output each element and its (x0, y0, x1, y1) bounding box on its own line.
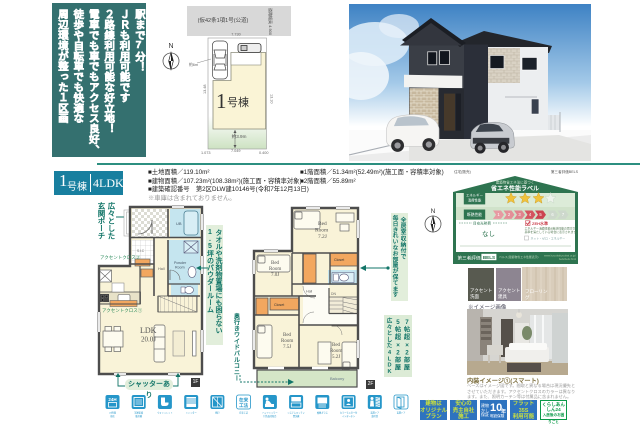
svg-text:N: N (168, 43, 173, 50)
svg-text:5.2J: 5.2J (332, 355, 340, 360)
svg-text:超: 超 (394, 333, 402, 341)
svg-text:N: N (431, 208, 436, 215)
svg-text:L: L (388, 356, 392, 362)
svg-text:基準を満たしている場合に表示されます。: 基準を満たしている場合に表示されます。 (525, 229, 580, 234)
svg-text:建築物省エネ法に基づく: 建築物省エネ法に基づく (496, 180, 535, 185)
svg-text:全: 全 (400, 216, 407, 224)
svg-text:す: す (393, 291, 399, 299)
svg-text:7.730: 7.730 (231, 33, 241, 37)
svg-text:き: き (393, 226, 399, 234)
svg-text:玄関ドア: 玄関ドア (370, 411, 380, 415)
svg-text:暖房機: 暖房機 (135, 414, 142, 418)
svg-text:第三者評価: 第三者評価 (458, 255, 481, 262)
svg-text:々: 々 (387, 324, 393, 331)
svg-text:ま: ま (393, 285, 399, 293)
svg-text:Room: Room (269, 267, 281, 272)
svg-text:Bed: Bed (332, 343, 341, 348)
svg-text:LDK: LDK (140, 326, 157, 335)
svg-text:帖: 帖 (395, 326, 402, 334)
svg-text:納: 納 (401, 240, 407, 248)
svg-text:Room: Room (315, 228, 329, 234)
svg-text:×: × (405, 342, 409, 349)
svg-text:浴室乾燥: 浴室乾燥 (134, 411, 144, 415)
svg-text:7.2J: 7.2J (318, 234, 327, 240)
svg-text:1: 1 (216, 89, 227, 113)
svg-text:断熱性能: 断熱性能 (467, 212, 482, 217)
svg-text:20.0J: 20.0J (141, 336, 156, 344)
svg-text:収: 収 (401, 234, 407, 242)
svg-text:K: K (387, 369, 391, 375)
svg-text:帖: 帖 (404, 326, 411, 334)
svg-text:0.400: 0.400 (259, 151, 269, 155)
svg-text:約6m: 約6m (189, 62, 198, 67)
svg-text:D: D (387, 363, 391, 369)
svg-text:目安光熱費: 目安光熱費 (473, 221, 491, 226)
svg-text:Hall: Hall (158, 267, 165, 271)
svg-text:保: 保 (392, 273, 399, 281)
svg-text:第三者評価BELS: 第三者評価BELS (551, 169, 579, 174)
svg-text:×: × (396, 342, 400, 349)
svg-text:室: 室 (401, 228, 407, 236)
svg-text:れ: れ (393, 232, 399, 240)
svg-text:UB: UB (176, 221, 182, 226)
svg-text:付洗面化粧台: 付洗面化粧台 (263, 414, 277, 418)
svg-text:Bed: Bed (271, 261, 280, 266)
svg-text:付: 付 (401, 247, 407, 255)
svg-text:複層ガラス: 複層ガラス (317, 411, 328, 415)
svg-text:玄関ドア: 玄関ドア (397, 411, 407, 415)
svg-text:居: 居 (401, 222, 407, 230)
svg-text:約3.9m: 約3.9m (232, 133, 247, 140)
svg-text:ハンドシャワー: ハンドシャワー (262, 411, 277, 415)
svg-text:BELS: BELS (483, 255, 495, 260)
svg-text:7.5J: 7.5J (283, 345, 291, 350)
svg-text:カラーモニター付: カラーモニター付 (340, 411, 358, 415)
svg-text:Room: Room (175, 266, 185, 270)
svg-text:アクセントクロス②: アクセントクロス② (100, 254, 141, 261)
svg-text:Closet: Closet (334, 258, 344, 262)
svg-text:24時間: 24時間 (109, 411, 116, 415)
svg-text:消費性能: 消費性能 (468, 198, 482, 203)
svg-text:フローリン: フローリン (525, 289, 548, 294)
svg-text:Balcony: Balcony (330, 376, 344, 381)
svg-text:bels/bels.html: bels/bels.html (559, 257, 576, 261)
svg-text:鎌付錠: 鎌付錠 (372, 414, 379, 418)
svg-text:部: 部 (393, 255, 399, 263)
svg-text:24H: 24H (108, 397, 116, 402)
svg-text:食洗機: 食洗機 (293, 414, 300, 418)
svg-text:部: 部 (395, 356, 402, 364)
svg-text:アクセントクロス①: アクセントクロス① (102, 307, 143, 314)
svg-text:7: 7 (405, 319, 409, 326)
svg-text:Hall: Hall (306, 290, 312, 294)
svg-text:号棟: 号棟 (227, 95, 249, 109)
svg-text:13.48: 13.48 (203, 84, 207, 94)
svg-text:ウォシュレット: ウォシュレット (157, 411, 172, 415)
svg-text:13.10: 13.10 (270, 94, 274, 104)
svg-text:グ: グ (525, 294, 530, 301)
svg-text:7.049: 7.049 (231, 149, 241, 153)
svg-text:部: 部 (404, 356, 411, 364)
svg-text:省エネ性能ラベル: 省エネ性能ラベル (490, 185, 539, 193)
svg-text:5: 5 (396, 319, 400, 326)
svg-text:2: 2 (405, 349, 409, 356)
svg-text:7.0J: 7.0J (271, 273, 279, 278)
svg-text:で: で (401, 254, 407, 261)
svg-text:シャッター: シャッター (186, 411, 197, 415)
svg-text:と: と (387, 330, 393, 337)
svg-text:Powder: Powder (174, 261, 187, 265)
svg-text:Room: Room (330, 349, 342, 354)
svg-text:工法: 工法 (239, 402, 249, 409)
svg-text:2: 2 (396, 349, 400, 356)
svg-text:住宅(販売): 住宅(販売) (454, 169, 471, 174)
svg-text:が: が (393, 267, 399, 275)
svg-text:広: 広 (387, 317, 393, 325)
svg-text:し: し (387, 336, 393, 343)
svg-text:S.I.C: S.I.C (137, 249, 145, 253)
svg-text:ZEH水準: ZEH水準 (532, 220, 548, 226)
svg-text:なし: なし (482, 230, 495, 238)
svg-text:エネルギー: エネルギー (466, 193, 484, 198)
svg-text:Room: Room (281, 339, 293, 344)
svg-text:ネット・ゼロ・エネルギー: ネット・ゼロ・エネルギー (531, 235, 566, 240)
svg-text:網戸: 網戸 (215, 411, 220, 415)
svg-text:毎: 毎 (393, 214, 399, 222)
svg-text:換気: 換気 (110, 414, 115, 418)
svg-text:Bed: Bed (283, 333, 292, 338)
svg-text:た: た (387, 343, 393, 350)
svg-text:屋: 屋 (395, 364, 401, 372)
svg-text:(仮42条1項1号(公道): (仮42条1項1号(公道) (198, 16, 249, 24)
svg-text:Closet: Closet (274, 303, 284, 307)
svg-text:ベルス(建築物省エネ性能表示): ベルス(建築物省エネ性能表示) (499, 254, 539, 259)
svg-text:道路幅員 4.900: 道路幅員 4.900 (268, 8, 274, 36)
svg-text:Bed: Bed (318, 221, 327, 227)
svg-text:システムキッチン: システムキッチン (287, 411, 304, 415)
svg-text:屋: 屋 (404, 364, 410, 372)
svg-text:インターホン: インターホン (342, 414, 355, 418)
svg-text:1.073: 1.073 (201, 151, 211, 155)
svg-text:超: 超 (403, 333, 411, 341)
svg-text:在来工法: 在来工法 (239, 411, 249, 415)
svg-text:屋: 屋 (393, 261, 399, 269)
svg-text:DN: DN (331, 292, 336, 296)
